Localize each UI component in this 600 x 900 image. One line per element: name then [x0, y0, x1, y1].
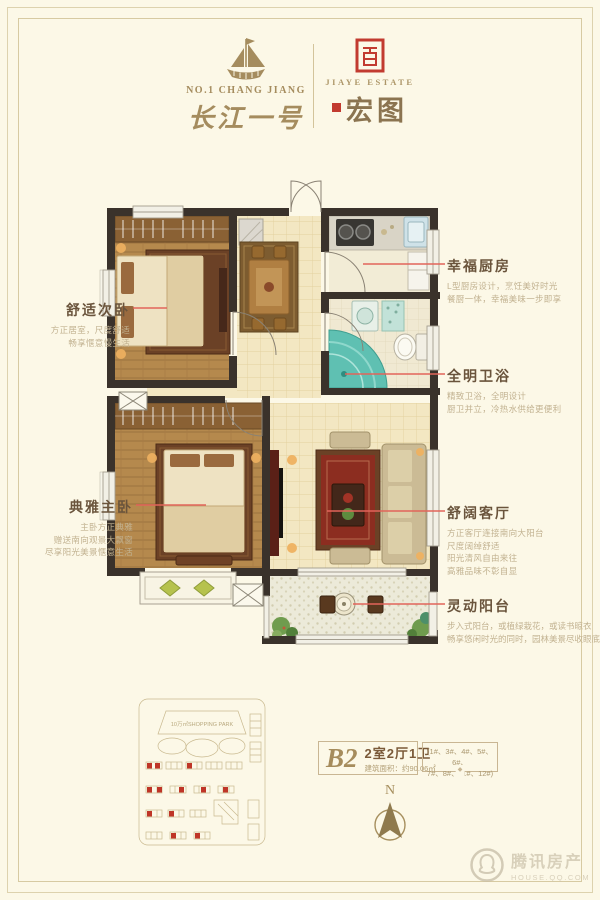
second-bedroom-furniture [116, 243, 230, 359]
label-balcony: 灵动阳台 步入式阳台，或植绿栽花，或读书晾衣 畅享悠闲时光的同时，园林美景尽收眼… [447, 596, 600, 645]
unit-buildings-box: (1#、3#、4#、5#、6#、 7#、8#、11#、12#) ◆ [422, 742, 498, 772]
label-kitchen: 幸福厨房 L型厨房设计，烹饪美好时光 餐厨一体，幸福美味一步即享 [447, 256, 561, 305]
sailboat-logo-icon [220, 36, 272, 82]
floorplan-poster: NO.1 CHANG JIANG 长江一号 JIAYE ESTATE 宏图 [0, 0, 600, 900]
compass-icon: N [372, 778, 408, 842]
watermark: 腾讯房产 HOUSE.QQ.COM [468, 846, 590, 884]
brand-changjiang: NO.1 CHANG JIANG 长江一号 [178, 36, 314, 135]
label-master-bedroom: 典雅主卧 主卧方正典雅 赠送南向观景大飘窗 尽享阳光美景惬意生活 [45, 497, 133, 559]
watermark-site: HOUSE.QQ.COM [511, 873, 590, 882]
unit-info-box: B2 2室2厅1卫 建筑面积：约90.06㎡ [318, 741, 418, 775]
brand-latin-right: JIAYE ESTATE [322, 77, 418, 87]
brand-latin-left: NO.1 CHANG JIANG [178, 85, 314, 96]
shopping-park-label: 10万㎡SHOPPING PARK [171, 720, 234, 728]
tencent-logo-icon [468, 846, 506, 884]
watermark-brand: 腾讯房产 [511, 848, 590, 872]
seal-logo-icon [355, 38, 385, 74]
site-plan-buildings [146, 762, 242, 839]
floorplan-drawing [0, 160, 600, 670]
brand-calligraphy-right: 宏图 [322, 89, 418, 128]
mini-seal-icon [332, 103, 341, 112]
label-living-room: 舒阔客厅 方正客厅连接南向大阳台 尺度阔绰舒适 阳光清风自由来往 高雅品味不彰自… [447, 503, 544, 577]
label-bathroom: 全明卫浴 精致卫浴，全明设计 厨卫并立，冷热水供给更便利 [447, 366, 561, 415]
site-plan-map: 10万㎡SHOPPING PARK [137, 697, 267, 849]
label-second-bedroom: 舒适次卧 方正居室，尺度舒适 畅享惬意慢生活 [51, 300, 130, 349]
brand-jiaye: JIAYE ESTATE 宏图 [322, 38, 418, 128]
unit-code: B2 [326, 745, 358, 772]
ornament-icon: ◆ [456, 765, 465, 776]
highlighted-units [147, 763, 228, 839]
brand-calligraphy-left: 长江一号 [178, 98, 314, 135]
header-divider [313, 44, 314, 128]
svg-text:N: N [385, 783, 395, 798]
